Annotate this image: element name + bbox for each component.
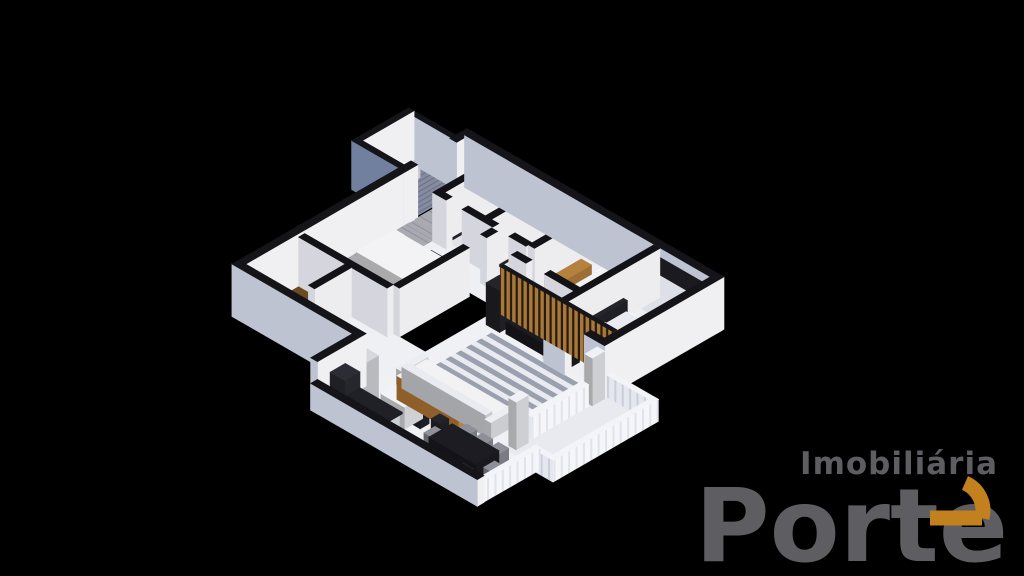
structures-and-furniture <box>232 108 724 507</box>
floorplan-presentation: Imobiliária Porte <box>0 0 1024 576</box>
logo-porte-text: Porte <box>695 486 1008 568</box>
brand-logo: Imobiliária Porte <box>695 446 1008 568</box>
